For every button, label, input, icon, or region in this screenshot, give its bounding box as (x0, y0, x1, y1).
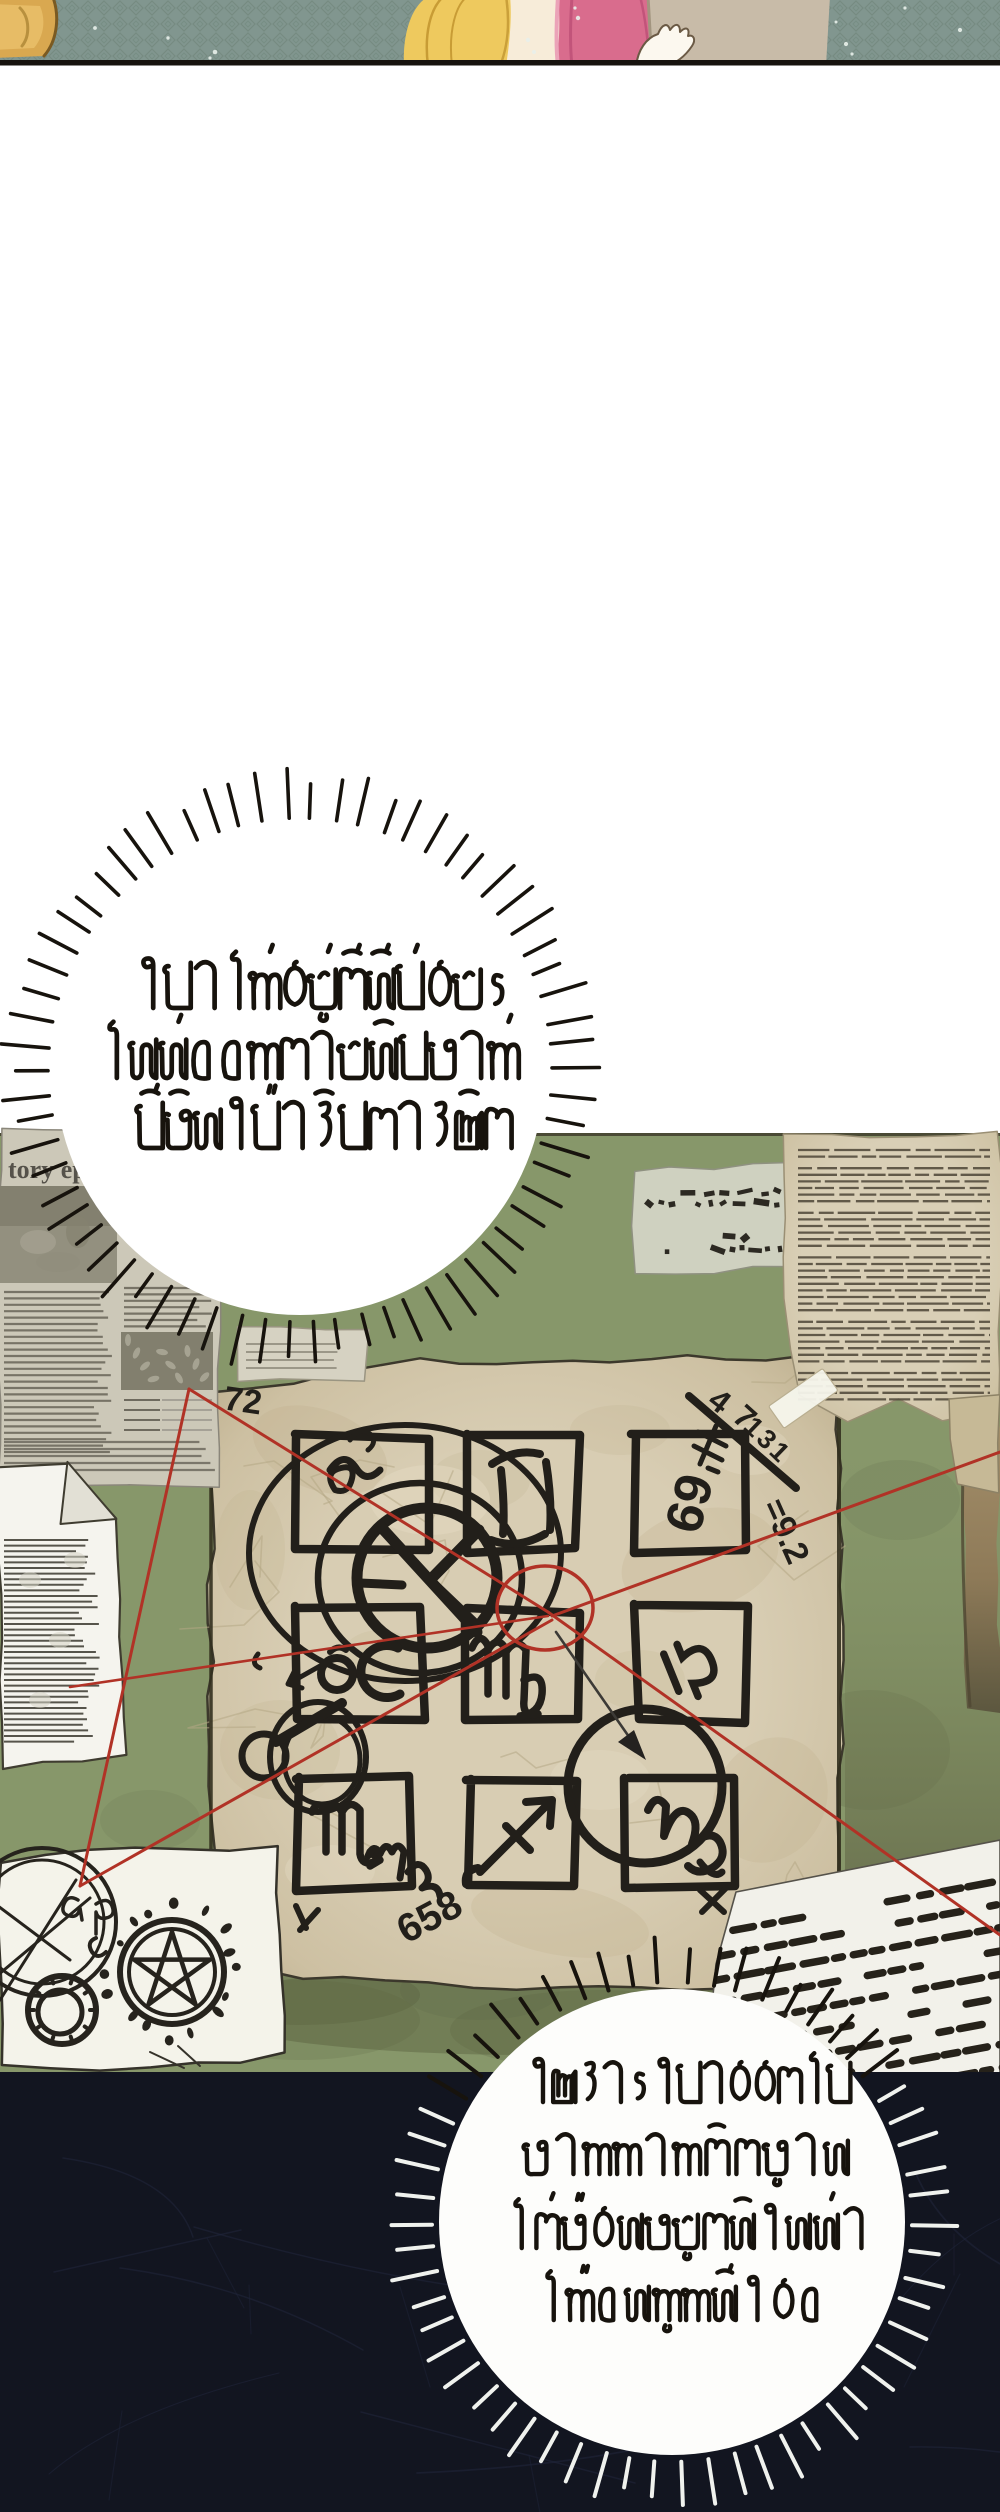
svg-text:72: 72 (221, 1380, 264, 1423)
